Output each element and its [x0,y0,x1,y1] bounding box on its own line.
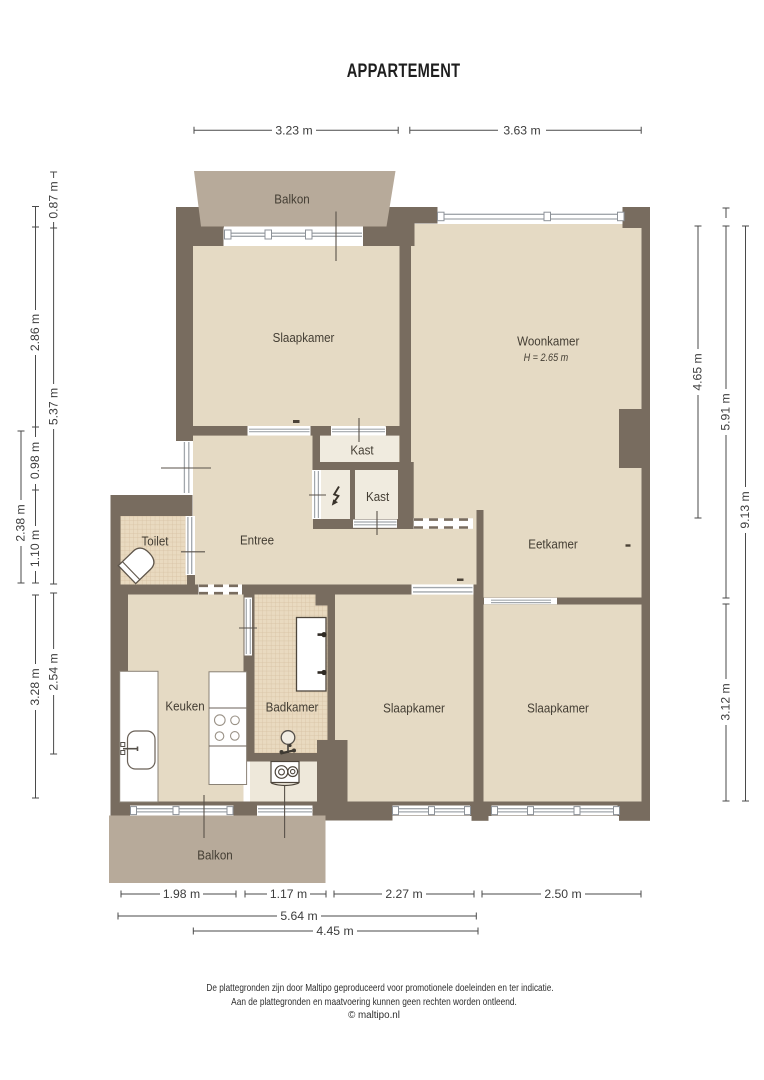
svg-text:Eetkamer: Eetkamer [528,537,578,552]
svg-text:2.38 m: 2.38 m [14,504,28,541]
svg-text:Kast: Kast [350,443,374,458]
svg-text:Aan de plattegronden en maatvo: Aan de plattegronden en maatvoering kunn… [231,996,517,1007]
svg-text:3.28 m: 3.28 m [28,668,42,705]
svg-text:4.45 m: 4.45 m [316,924,353,938]
svg-text:1.98 m: 1.98 m [163,887,200,901]
svg-text:3.23 m: 3.23 m [275,123,312,137]
svg-text:H = 2.65 m: H = 2.65 m [524,352,569,364]
svg-text:9.13 m: 9.13 m [738,491,752,528]
svg-text:Slaapkamer: Slaapkamer [527,701,589,716]
svg-text:3.63 m: 3.63 m [503,123,540,137]
svg-text:1.17 m: 1.17 m [270,887,307,901]
svg-text:Slaapkamer: Slaapkamer [273,331,335,346]
svg-text:Entree: Entree [240,533,274,548]
svg-text:APPARTEMENT: APPARTEMENT [347,59,461,82]
svg-text:1.10 m: 1.10 m [28,530,42,567]
svg-text:0.98 m: 0.98 m [28,442,42,479]
svg-text:De plattegronden zijn door Mal: De plattegronden zijn door Maltipo gepro… [206,982,553,993]
svg-text:Balkon: Balkon [197,848,232,863]
svg-text:5.37 m: 5.37 m [46,388,60,425]
svg-text:0.87 m: 0.87 m [46,181,60,218]
svg-text:2.50 m: 2.50 m [544,887,581,901]
svg-text:Kast: Kast [366,490,390,505]
svg-text:3.12 m: 3.12 m [719,683,733,720]
svg-text:Slaapkamer: Slaapkamer [383,701,445,716]
svg-text:2.27 m: 2.27 m [385,887,422,901]
svg-text:2.86 m: 2.86 m [28,314,42,351]
svg-text:Badkamer: Badkamer [266,700,319,715]
svg-text:4.65 m: 4.65 m [691,353,705,390]
svg-text:© maltipo.nl: © maltipo.nl [348,1010,400,1021]
svg-text:5.91 m: 5.91 m [719,393,733,430]
svg-text:Keuken: Keuken [165,699,204,714]
svg-text:Woonkamer: Woonkamer [517,334,579,349]
svg-text:Toilet: Toilet [141,534,169,549]
svg-text:5.64 m: 5.64 m [280,909,317,923]
svg-text:Balkon: Balkon [274,192,309,207]
svg-text:2.54 m: 2.54 m [46,653,60,690]
